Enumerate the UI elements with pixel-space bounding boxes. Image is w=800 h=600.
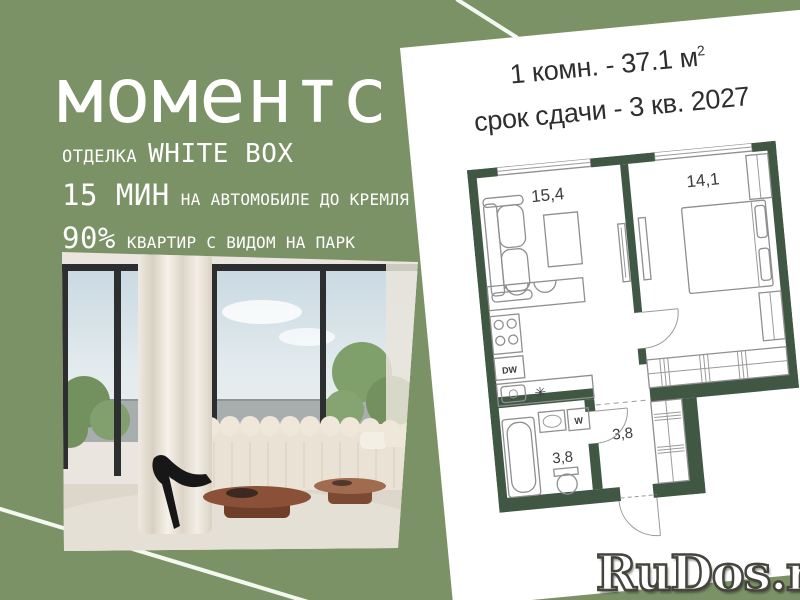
brand-title: моментс xyxy=(57,58,389,135)
feature-park-view: 90% КВАРТИР С ВИДОМ НА ПАРК xyxy=(62,221,409,255)
curtain xyxy=(138,252,212,534)
bathtub xyxy=(502,417,541,498)
hallway: 3,8 xyxy=(596,397,695,541)
feature-list: ОТДЕЛКА WHITE BOX 15 МИН НА АВТОМОБИЛЕ Д… xyxy=(62,139,409,255)
coffee-table xyxy=(544,212,583,267)
wardrobe-top xyxy=(746,154,772,200)
square-meter-sup: 2 xyxy=(696,42,705,59)
feature-drive-time-label: НА АВТОМОБИЛЕ ДО КРЕМЛЯ xyxy=(181,190,409,209)
sofa-photo xyxy=(178,416,418,490)
sofa-pillow xyxy=(360,432,387,449)
feature-park-view-value: 90% xyxy=(62,221,116,255)
wardrobe-bottom xyxy=(759,291,785,341)
bedroom: 14,1 xyxy=(628,154,788,388)
dishwasher: DW xyxy=(494,356,525,381)
apartment-rooms-area: 1 комн. - 37.1 м xyxy=(509,42,699,90)
floorplan-svg: 15,4 xyxy=(467,141,800,559)
tv-console-bedroom xyxy=(638,217,651,279)
watermark-text: RuDos.ru xyxy=(596,549,800,598)
kitchen-counter xyxy=(487,278,585,311)
card-header: 1 комн. - 37.1 м2 срок сдачи - 3 кв. 202… xyxy=(400,9,800,145)
feature-finish-value: WHITE BOX xyxy=(148,139,293,169)
window-living xyxy=(497,158,591,175)
stove xyxy=(490,314,522,355)
closet-hall-hatch xyxy=(654,412,685,453)
cloud xyxy=(279,328,335,346)
interior-photo xyxy=(62,252,418,551)
sink-symbol: ✳ xyxy=(534,384,547,401)
feature-drive-time-value: 15 МИН xyxy=(62,178,170,212)
living-room: 15,4 xyxy=(478,179,641,407)
diagonal-line-top xyxy=(455,0,520,40)
apartment-card: 1 комн. - 37.1 м2 срок сдачи - 3 кв. 202… xyxy=(400,7,800,600)
room-label-bedroom: 14,1 xyxy=(686,169,721,191)
entrance-door xyxy=(619,495,661,539)
washer-label: W xyxy=(574,415,584,426)
interior-photo-scene xyxy=(62,252,418,551)
feature-finish-label: ОТДЕЛКА xyxy=(62,147,137,167)
feature-finish: ОТДЕЛКА WHITE BOX xyxy=(62,139,409,169)
sofa-pillow xyxy=(384,430,409,447)
feature-drive-time: 15 МИН НА АВТОМОБИЛЕ ДО КРЕМЛЯ xyxy=(62,178,409,212)
bathroom: 3,8 W xyxy=(501,404,634,500)
toilet xyxy=(554,467,580,495)
feature-park-view-label: КВАРТИР С ВИДОМ НА ПАРК xyxy=(127,233,355,252)
window-bedroom xyxy=(654,143,752,160)
bedroom-door xyxy=(642,309,681,348)
dishwasher-label: DW xyxy=(502,364,518,375)
room-label-bath: 3,8 xyxy=(551,448,573,467)
zone-dashed-line xyxy=(596,400,648,405)
ad-poster: моментс ОТДЕЛКА WHITE BOX 15 МИН НА АВТО… xyxy=(0,0,800,600)
bathroom-sink xyxy=(538,410,566,432)
bed xyxy=(681,200,773,294)
room-label-living: 15,4 xyxy=(530,184,565,206)
cloud xyxy=(222,300,302,324)
